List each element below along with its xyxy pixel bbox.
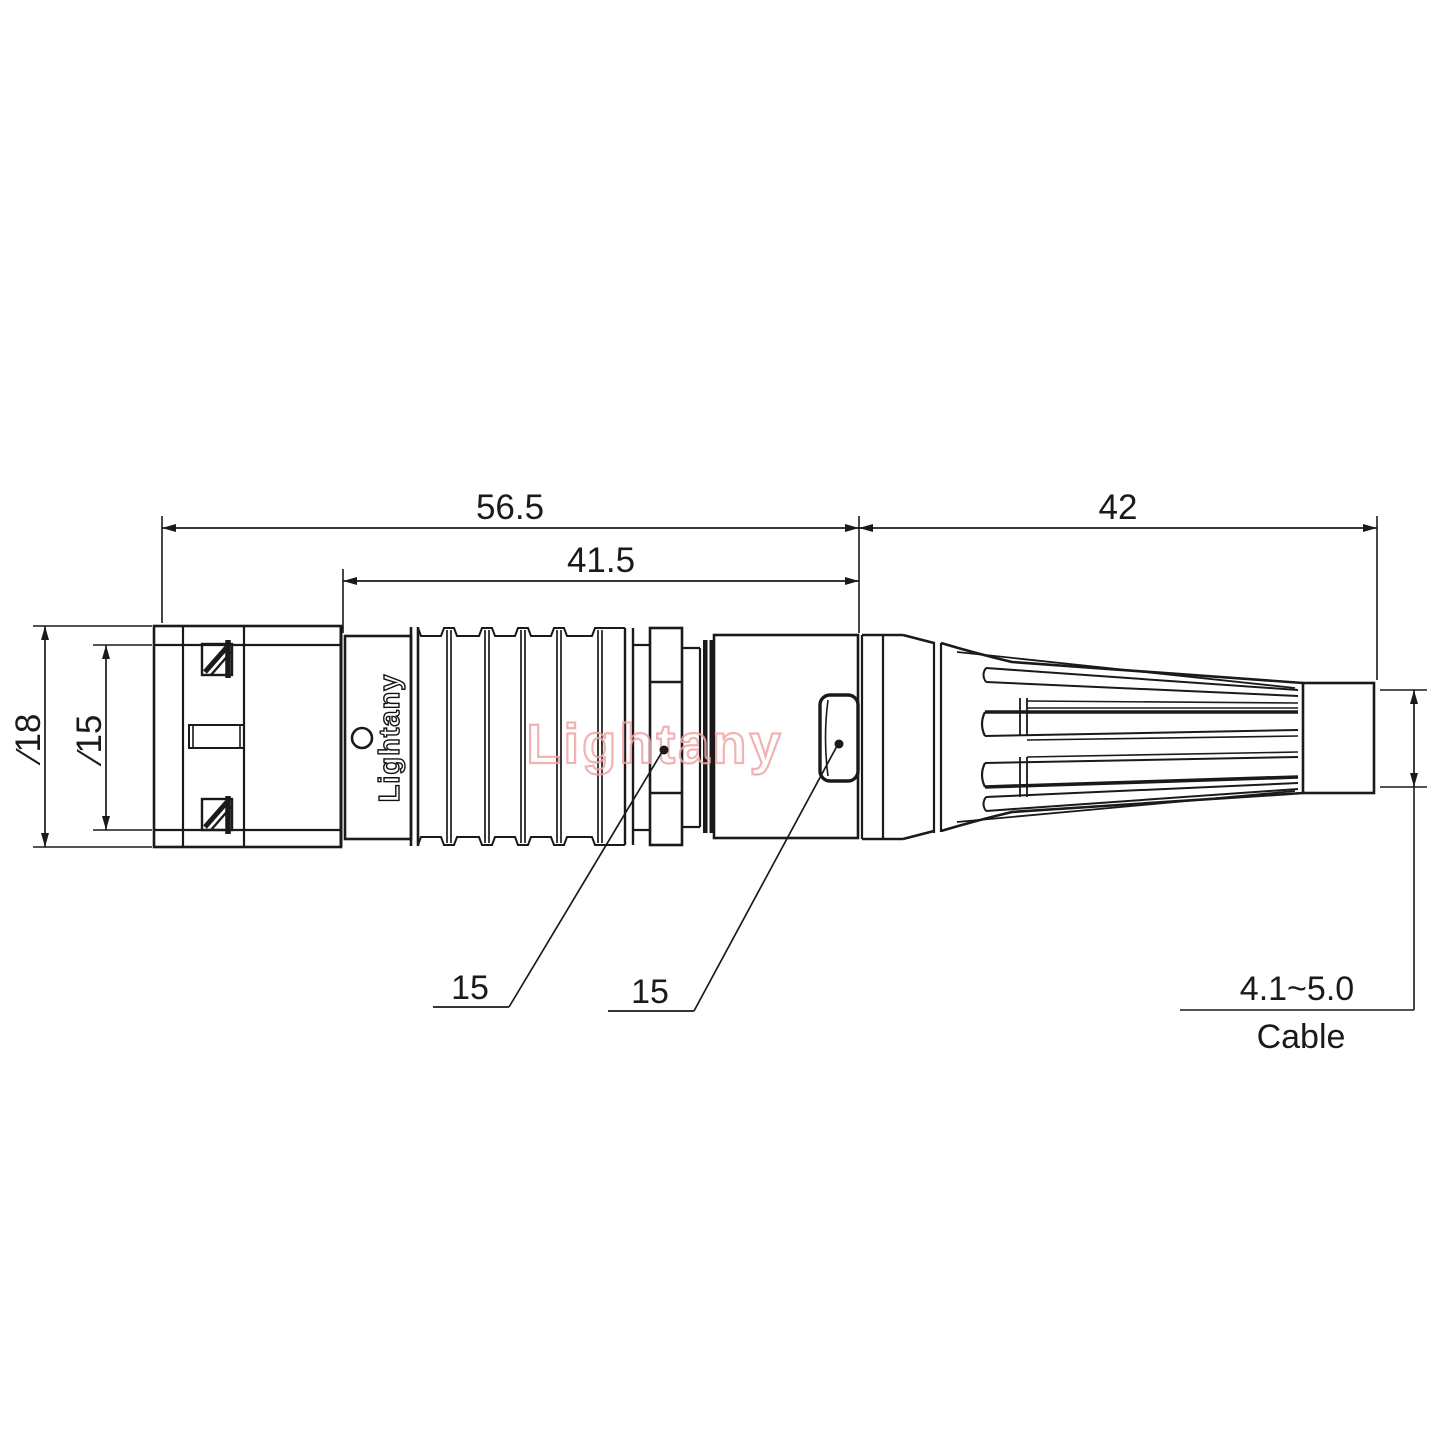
label-body-length: 41.5	[567, 541, 635, 580]
leader-dot-rear	[835, 740, 844, 749]
release-mark-circle	[352, 728, 372, 748]
label-overall-length: 56.5	[476, 488, 544, 527]
label-wrench-rear: 15	[631, 973, 669, 1011]
front-shell	[154, 626, 341, 847]
wrench-callout-rear	[608, 740, 844, 1012]
label-cable-range: 4.1~5.0	[1240, 970, 1354, 1008]
front-shell-slot	[189, 725, 244, 748]
watermark-text: Lightany	[526, 712, 783, 775]
bend-relief	[941, 643, 1303, 831]
label-cable-caption: Cable	[1257, 1018, 1346, 1056]
label-outer-diameter: ∕18	[9, 714, 48, 767]
relief-base	[862, 635, 941, 839]
label-relief-length: 42	[1099, 488, 1138, 527]
barrel-engraving-text: Lightany	[374, 674, 406, 803]
leader-dot-front	[660, 746, 669, 755]
connector-side-view-svg: Lightany Lightany	[0, 0, 1440, 1440]
key-block-bottom	[202, 796, 232, 834]
label-wrench-front: 15	[451, 969, 489, 1007]
cable-tip	[1303, 683, 1374, 793]
label-inner-diameter: ∕15	[70, 715, 109, 768]
technical-drawing: Lightany Lightany	[0, 0, 1440, 1440]
